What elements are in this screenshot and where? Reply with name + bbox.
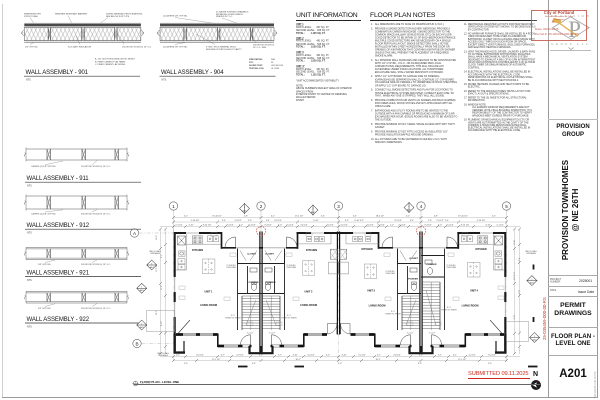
- svg-text:A401: A401: [243, 209, 247, 212]
- svg-text:5/8" GYP. BD.: 5/8" GYP. BD.: [38, 308, 51, 310]
- svg-text:LAYERS (2) 5/8" GYP. BD.: LAYERS (2) 5/8" GYP. BD.: [31, 165, 56, 168]
- svg-text:6'-10": 6'-10": [313, 220, 318, 222]
- svg-text:3'-7": 3'-7": [278, 355, 282, 357]
- svg-text:17'-2 1/2": 17'-2 1/2": [295, 216, 304, 218]
- svg-text:UNIT 4: UNIT 4: [470, 290, 479, 293]
- svg-text:5'-6": 5'-6": [353, 216, 357, 218]
- svg-text:A: A: [133, 231, 137, 236]
- svg-text:A. 1X2 T&G HORIZONTAL WOOD SI: A. 1X2 T&G HORIZONTAL WOOD SIDING: [95, 58, 135, 61]
- svg-text:SEE BELOW FOR TYPE: SEE BELOW FOR TYPE: [106, 16, 130, 18]
- svg-text:POWDER: POWDER: [249, 282, 259, 284]
- svg-text:A402: A402: [140, 289, 144, 292]
- svg-text:FINISH TO FINISH: FINISH TO FINISH: [441, 309, 457, 311]
- svg-text:2X6 WOOD STUDS @ 16" O.C.: 2X6 WOOD STUDS @ 16" O.C.: [81, 308, 111, 310]
- svg-text:USG 810124: USG 810124: [271, 65, 284, 67]
- svg-text:A402: A402: [530, 282, 534, 285]
- svg-text:8'-2 1/4": 8'-2 1/4": [274, 220, 282, 222]
- svg-text:8'-10 1/4": 8'-10 1/4": [461, 225, 470, 227]
- svg-text:A401: A401: [311, 211, 315, 214]
- svg-text:OVERHANG: OVERHANG: [150, 252, 161, 255]
- svg-text:LIVING ROOM: LIVING ROOM: [462, 305, 479, 308]
- svg-text:5/8" GYP. BD.: 5/8" GYP. BD.: [25, 47, 38, 49]
- svg-text:(2) LAYERS 5/8" GYP. BD.: (2) LAYERS 5/8" GYP. BD.: [163, 46, 188, 49]
- svg-text:NTS: NTS: [162, 79, 167, 82]
- svg-text:4'-8": 4'-8": [434, 216, 438, 218]
- svg-text:OVER DAM: OVER DAM: [226, 266, 236, 269]
- svg-text:3'-7": 3'-7": [438, 355, 442, 357]
- svg-text:6'-3": 6'-3": [252, 363, 256, 365]
- svg-text:2'-0": 2'-0": [390, 225, 394, 227]
- svg-text:UNIT 3: UNIT 3: [367, 290, 376, 293]
- svg-text:SOUND TEST:: SOUND TEST:: [249, 65, 263, 67]
- svg-text:4'-10": 4'-10": [485, 225, 490, 227]
- svg-text:4: 4: [420, 204, 423, 209]
- svg-text:2'-0": 2'-0": [239, 225, 243, 227]
- svg-text:OVERHANG: OVERHANG: [526, 252, 537, 255]
- svg-text:17'-5 1/2": 17'-5 1/2": [513, 272, 515, 281]
- svg-text:2'-2 1/2": 2'-2 1/2": [269, 332, 276, 334]
- svg-text:A401: A401: [407, 208, 411, 211]
- svg-text:4'-10": 4'-10": [188, 225, 193, 227]
- svg-text:6'-0": 6'-0": [419, 355, 423, 357]
- svg-text:3'-4 1/4": 3'-4 1/4": [446, 225, 454, 227]
- svg-text:2'-4 1/2": 2'-4 1/2": [436, 220, 444, 222]
- svg-text:4'-6 1/4": 4'-6 1/4": [340, 225, 348, 227]
- svg-text:3'-4 1/4": 3'-4 1/4": [286, 225, 294, 227]
- svg-text:FINISH TO FINISH: FINISH TO FINISH: [385, 313, 401, 315]
- svg-text:6'-0": 6'-0": [259, 355, 263, 357]
- svg-text:2'-5": 2'-5": [488, 363, 492, 365]
- svg-text:3'-4 1/4": 3'-4 1/4": [226, 225, 234, 227]
- svg-text:KITCHEN: KITCHEN: [361, 248, 372, 251]
- svg-text:KITCHEN: KITCHEN: [192, 249, 203, 252]
- svg-text:2'-0": 2'-0": [428, 220, 432, 222]
- svg-text:4'-8": 4'-8": [244, 216, 248, 218]
- svg-text:9'-10 3/4": 9'-10 3/4": [191, 220, 200, 222]
- svg-text:KITCHEN: KITCHEN: [475, 248, 486, 251]
- svg-text:3'-4 1/4": 3'-4 1/4": [377, 225, 385, 227]
- svg-text:3'-4 1/4": 3'-4 1/4": [248, 225, 256, 227]
- svg-text:5'-2": 5'-2": [184, 216, 188, 218]
- svg-text:2'-2 1/2": 2'-2 1/2": [247, 332, 254, 334]
- svg-text:CLOSET: CLOSET: [409, 258, 419, 260]
- svg-text:A402: A402: [140, 326, 144, 329]
- svg-text:6'-1": 6'-1": [345, 220, 349, 222]
- svg-text:3'-4": 3'-4": [266, 220, 270, 222]
- svg-text:2X6 WOOD STUDS @ 16" O.C.: 2X6 WOOD STUDS @ 16" O.C.: [122, 47, 152, 49]
- svg-text:WALL ASSEMBLY - 922: WALL ASSEMBLY - 922: [27, 317, 90, 323]
- svg-text:2HR: 2HR: [271, 59, 276, 61]
- svg-text:OVER DAM: OVER DAM: [286, 266, 296, 269]
- svg-text:6'-1": 6'-1": [518, 258, 520, 262]
- svg-text:OVERHANG: OVERHANG: [158, 354, 169, 357]
- svg-text:2'-4 1/2": 2'-4 1/2": [234, 220, 242, 222]
- svg-text:R-21 BATT INSULATION: R-21 BATT INSULATION: [68, 46, 92, 49]
- svg-text:2'-1 1/2": 2'-1 1/2": [175, 225, 183, 227]
- svg-text:8'-10 1/4": 8'-10 1/4": [203, 225, 212, 227]
- svg-text:4'-9 1/2": 4'-9 1/2": [236, 355, 244, 357]
- svg-text:FINISH TO FINISH: FINISH TO FINISH: [281, 317, 297, 319]
- svg-text:WALL ASSEMBLY - 901: WALL ASSEMBLY - 901: [26, 70, 89, 76]
- svg-text:4'-6 1/4": 4'-6 1/4": [326, 225, 334, 227]
- svg-text:2X4 WOOD STUDS @ 16" O.C.: 2X4 WOOD STUDS @ 16" O.C.: [81, 166, 111, 168]
- svg-text:WALL ASSEMBLY - 921: WALL ASSEMBLY - 921: [27, 270, 90, 276]
- svg-text:3'-7": 3'-7": [377, 355, 381, 357]
- svg-text:16" O.C., MIN.: 16" O.C., MIN.: [253, 47, 267, 49]
- svg-text:5/8" GYP. BD.: 5/8" GYP. BD.: [38, 264, 51, 266]
- svg-text:3'-7": 3'-7": [221, 355, 225, 357]
- svg-text:LIVING ROOM: LIVING ROOM: [200, 304, 217, 307]
- svg-text:56: 56: [271, 62, 274, 64]
- svg-text:KITCHEN: KITCHEN: [306, 249, 317, 252]
- svg-text:POWDER: POWDER: [427, 264, 437, 266]
- svg-text:3'-10": 3'-10": [292, 355, 297, 357]
- svg-text:16'-2": 16'-2": [375, 359, 380, 361]
- svg-text:UNIT 1: UNIT 1: [205, 291, 214, 294]
- svg-text:2'-1 1/2": 2'-1 1/2": [496, 225, 504, 227]
- svg-text:FIRE RATING:: FIRE RATING:: [249, 58, 263, 61]
- svg-text:UL U305: UL U305: [271, 68, 280, 70]
- svg-text:CLOSET: CLOSET: [265, 254, 275, 256]
- svg-text:TESTING GYM:: TESTING GYM:: [249, 68, 264, 70]
- svg-text:3'-4 1/4": 3'-4 1/4": [264, 225, 272, 227]
- svg-text:2'-0": 2'-0": [438, 225, 442, 227]
- svg-text:17'-1 1/2": 17'-1 1/2": [212, 359, 221, 361]
- svg-text:4'-1": 4'-1": [453, 355, 457, 357]
- svg-text:2X6 WOOD STUDS @ 16" O.C.: 2X6 WOOD STUDS @ 16" O.C.: [81, 214, 111, 216]
- svg-text:3'-4": 3'-4": [410, 220, 414, 222]
- svg-text:6'-3": 6'-3": [418, 363, 422, 365]
- svg-text:NTS: NTS: [27, 325, 32, 328]
- svg-text:4'-5 1/2": 4'-5 1/2": [307, 355, 315, 357]
- svg-text:LAYERS (2) 5/8" GYP. BD.: LAYERS (2) 5/8" GYP. BD.: [31, 213, 56, 216]
- svg-text:LIVING ROOM: LIVING ROOM: [369, 305, 386, 308]
- svg-text:19'-10 1/2": 19'-10 1/2": [212, 216, 222, 218]
- svg-text:11'-2": 11'-2": [161, 285, 163, 290]
- svg-text:3'-4": 3'-4": [222, 220, 226, 222]
- svg-text:CLOSET: CLOSET: [247, 254, 257, 256]
- svg-text:WEATHER RESISTANT BARRIER: WEATHER RESISTANT BARRIER: [55, 13, 88, 16]
- svg-text:FINISH TO FINISH: FINISH TO FINISH: [225, 317, 241, 319]
- svg-text:8'-2 1/4": 8'-2 1/4": [488, 355, 496, 357]
- svg-text:LIVING ROOM: LIVING ROOM: [300, 304, 317, 307]
- svg-text:3: 3: [337, 204, 340, 209]
- svg-text:SPACED 24" O.C.: SPACED 24" O.C.: [216, 15, 233, 18]
- svg-text:10'-2": 10'-2": [513, 240, 515, 245]
- svg-text:4'-6 1/4": 4'-6 1/4": [366, 225, 374, 227]
- svg-text:NTS: NTS: [27, 232, 32, 235]
- svg-text:NTS: NTS: [27, 185, 32, 188]
- svg-text:STRUCTURAL: STRUCTURAL: [24, 15, 39, 18]
- svg-text:3'-4 1/4": 3'-4 1/4": [398, 225, 406, 227]
- svg-text:5'-8 1/4": 5'-8 1/4": [393, 355, 401, 357]
- svg-text:3'-4": 3'-4": [445, 220, 449, 222]
- svg-text:19'-10 1/2": 19'-10 1/2": [458, 216, 468, 218]
- svg-text:10'-2": 10'-2": [156, 235, 158, 240]
- svg-text:5'-2": 5'-2": [492, 216, 496, 218]
- svg-text:NTS: NTS: [26, 79, 31, 82]
- svg-text:WALL ASSEMBLY - 912: WALL ASSEMBLY - 912: [27, 223, 90, 229]
- svg-text:NTS: NTS: [27, 279, 32, 282]
- svg-text:5'-6": 5'-6": [321, 216, 325, 218]
- svg-text:UNIT 2: UNIT 2: [305, 291, 314, 294]
- svg-text:A401: A401: [150, 266, 154, 269]
- svg-text:16'-2": 16'-2": [295, 359, 300, 361]
- svg-text:WALL ASSEMBLY - 911: WALL ASSEMBLY - 911: [27, 176, 90, 182]
- svg-text:STC:: STC:: [249, 62, 254, 64]
- svg-text:4'-2": 4'-2": [360, 220, 364, 222]
- svg-text:OVER DAM: OVER DAM: [446, 266, 456, 269]
- svg-text:2: 2: [260, 204, 263, 209]
- svg-text:INSULATION THROUGHOUT CAVITY: INSULATION THROUGHOUT CAVITY: [206, 48, 242, 51]
- svg-text:2'-2 1/2": 2'-2 1/2": [429, 332, 436, 334]
- svg-text:B. FIBER CEMENT FLAT PANEL: B. FIBER CEMENT FLAT PANEL: [95, 60, 127, 63]
- svg-text:POWDER: POWDER: [266, 282, 276, 284]
- svg-text:(2) LAYERS 5/8" GYP. BD.: (2) LAYERS 5/8" GYP. BD.: [163, 15, 188, 18]
- svg-text:5: 5: [505, 204, 508, 209]
- svg-text:2X6 WOOD STUDS @ 16" O.C.: 2X6 WOOD STUDS @ 16" O.C.: [81, 264, 111, 266]
- svg-text:17'-1 1/2": 17'-1 1/2": [458, 359, 467, 361]
- svg-text:C. FIBER CEMENT LAP SIDING: C. FIBER CEMENT LAP SIDING: [95, 63, 126, 66]
- svg-text:POWDER: POWDER: [408, 279, 418, 281]
- svg-text:5'-2 1/2": 5'-2 1/2": [358, 355, 366, 357]
- svg-text:2'-0": 2'-0": [248, 220, 252, 222]
- svg-text:2'-0": 2'-0": [278, 225, 282, 227]
- svg-text:8'-2 1/4": 8'-2 1/4": [196, 355, 204, 357]
- svg-text:6'-1": 6'-1": [161, 254, 163, 258]
- svg-text:B: B: [135, 341, 138, 346]
- svg-text:12'-1": 12'-1": [513, 315, 515, 320]
- svg-text:3'-10": 3'-10": [341, 355, 346, 357]
- svg-text:4'-1": 4'-1": [406, 216, 410, 218]
- svg-text:4'-6 1/4": 4'-6 1/4": [300, 225, 308, 227]
- svg-text:4'-3": 4'-3": [326, 355, 330, 357]
- svg-text:5'-0": 5'-0": [338, 363, 342, 365]
- svg-text:2'-5": 2'-5": [176, 355, 180, 357]
- svg-text:2'-2 1/2": 2'-2 1/2": [407, 332, 414, 334]
- svg-text:8'-2 1/4": 8'-2 1/4": [394, 220, 402, 222]
- svg-text:1: 1: [172, 204, 175, 209]
- svg-text:2'-5": 2'-5": [184, 363, 188, 365]
- svg-text:18'-4 1/2": 18'-4 1/2": [376, 216, 385, 218]
- svg-text:4'-2 1/2": 4'-2 1/2": [468, 355, 476, 357]
- svg-text:OVER DAM: OVER DAM: [385, 272, 395, 275]
- svg-text:A402: A402: [533, 338, 537, 341]
- svg-text:8'-10": 8'-10": [161, 321, 163, 326]
- svg-text:11'-2": 11'-2": [518, 290, 520, 295]
- svg-text:WALL ASSEMBLY - 904: WALL ASSEMBLY - 904: [161, 70, 224, 76]
- svg-text:9'-10 3/4": 9'-10 3/4": [477, 220, 486, 222]
- svg-text:4'-1": 4'-1": [271, 216, 275, 218]
- svg-text:3'-4 1/4": 3'-4 1/4": [424, 225, 432, 227]
